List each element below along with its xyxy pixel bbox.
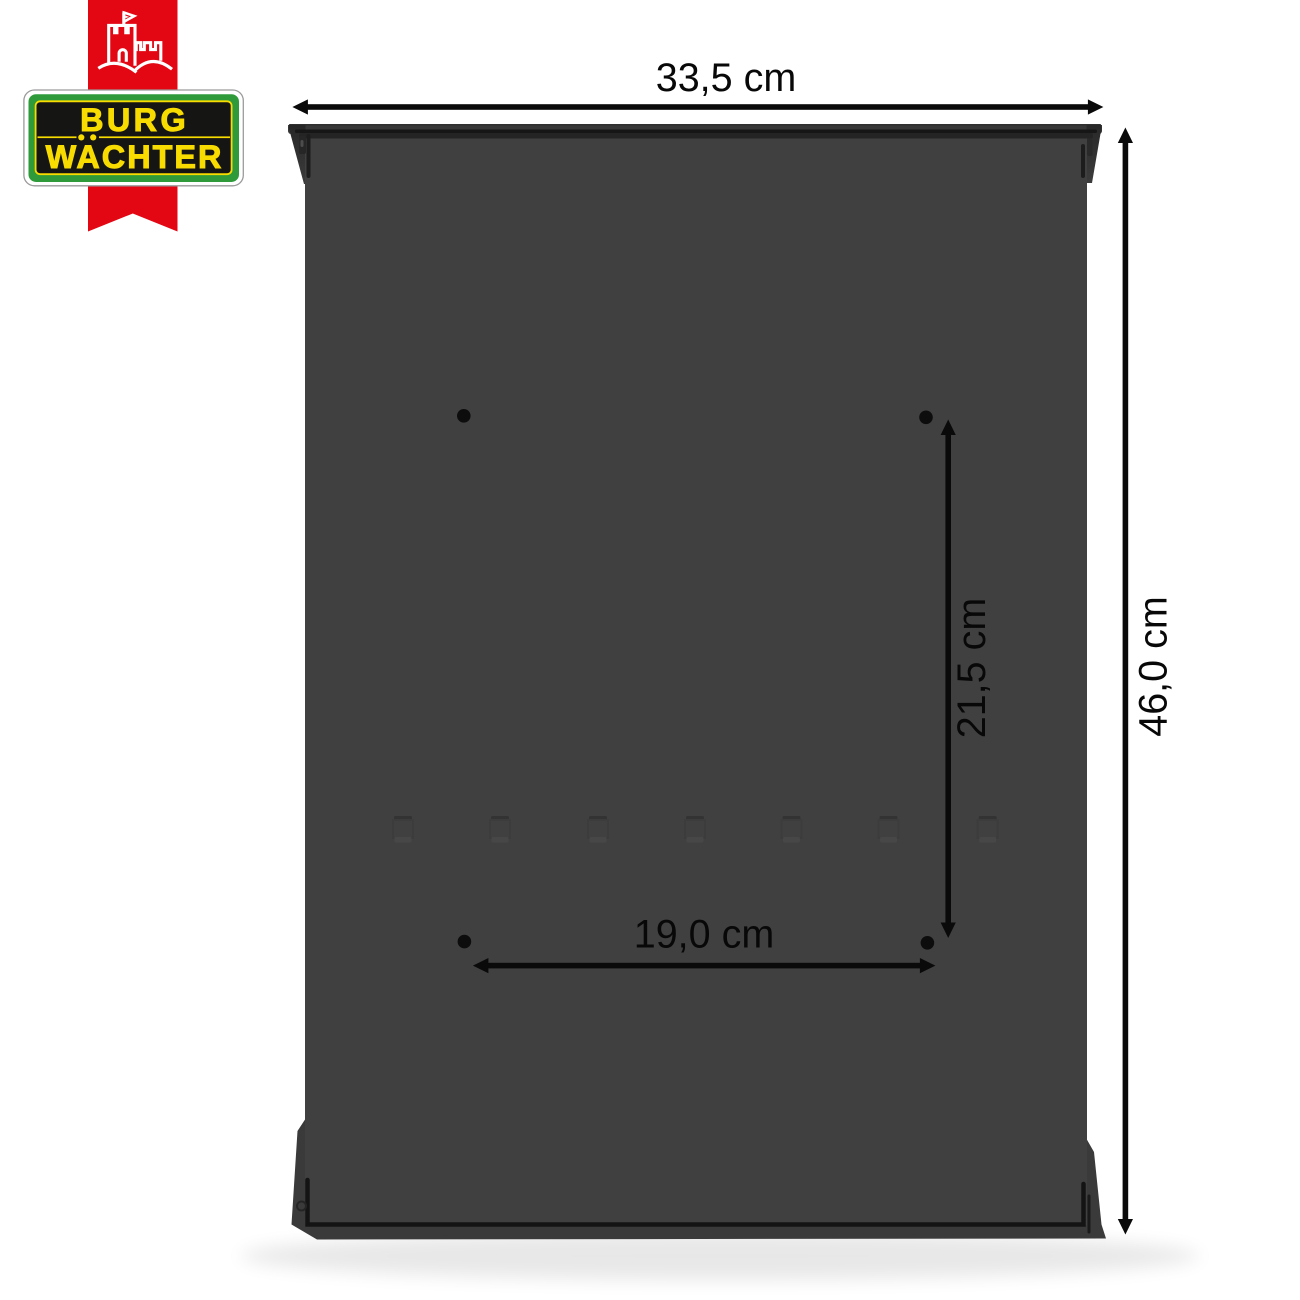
svg-text:19,0 cm: 19,0 cm	[634, 913, 775, 957]
svg-text:21,5 cm: 21,5 cm	[950, 598, 994, 739]
svg-text:33,5 cm: 33,5 cm	[656, 56, 797, 100]
svg-text:WACHTER: WACHTER	[46, 139, 224, 175]
svg-text:BURG: BURG	[80, 102, 189, 138]
svg-text:46,0 cm: 46,0 cm	[1132, 596, 1176, 737]
